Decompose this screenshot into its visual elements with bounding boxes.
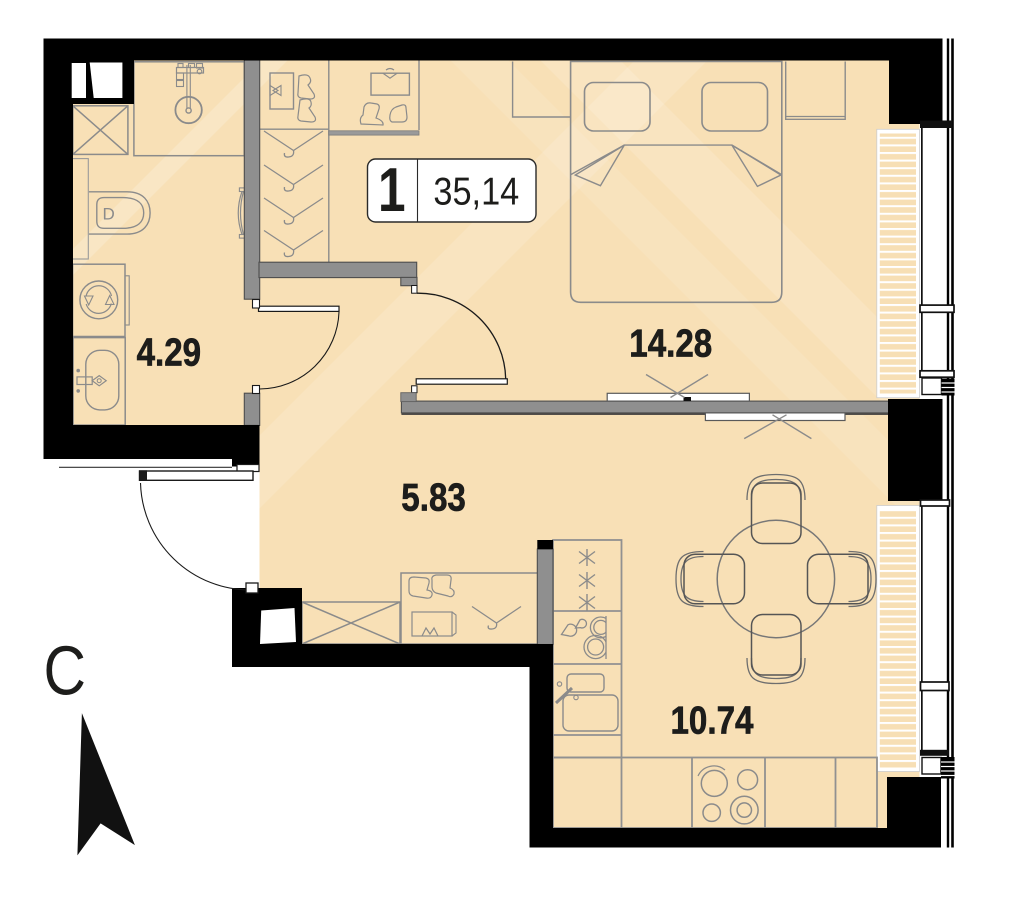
svg-text:10.74: 10.74: [671, 698, 754, 742]
svg-text:D: D: [103, 205, 115, 224]
svg-text:35,14: 35,14: [433, 169, 519, 213]
svg-text:4.29: 4.29: [137, 330, 202, 374]
svg-text:C: C: [44, 631, 86, 710]
svg-text:5.83: 5.83: [401, 475, 466, 519]
svg-text:1: 1: [378, 155, 406, 225]
svg-text:14.28: 14.28: [629, 321, 712, 365]
